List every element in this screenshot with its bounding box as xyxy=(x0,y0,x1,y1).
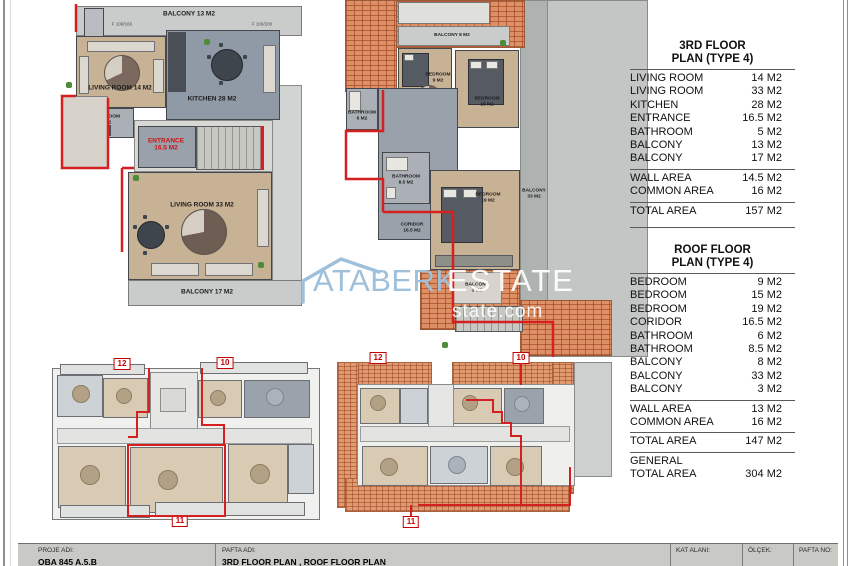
table-row: COMMON AREA16 M2 xyxy=(630,416,795,429)
furniture-dot xyxy=(116,388,132,404)
roof-tiles-left xyxy=(345,0,397,92)
table-row: BALCONY8 M2 xyxy=(630,356,795,369)
watermark-estate-text: ESTATE xyxy=(447,263,575,299)
table-row: BATHROOM5 M2 xyxy=(630,126,795,139)
furniture-dot xyxy=(80,465,100,485)
divider xyxy=(630,273,795,274)
table-row: LIVING ROOM14 M2 xyxy=(630,72,795,85)
bedroom-15-label: BEDROOM15 M2 xyxy=(474,96,499,107)
plant-icon xyxy=(442,342,448,348)
table-row: BALCONY17 M2 xyxy=(630,152,795,165)
corridor-band xyxy=(360,426,570,442)
table-title: 3RD FLOOR PLAN (TYPE 4) xyxy=(630,40,795,66)
kitchen-28 xyxy=(166,30,280,120)
table-row: BEDROOM15 M2 xyxy=(630,289,795,302)
table-row: BATHROOM6 M2 xyxy=(630,330,795,343)
table-total-row: TOTAL AREA147 M2 xyxy=(630,435,795,448)
balcony-13-label: BALCONY 13 M2 xyxy=(163,10,215,17)
closet-box xyxy=(84,8,104,38)
closet-row xyxy=(398,2,490,24)
table-row: BEDROOM19 M2 xyxy=(630,303,795,316)
table-row: BEDROOM9 M2 xyxy=(630,276,795,289)
bedroom-15 xyxy=(455,50,519,128)
title-block-divider xyxy=(670,544,671,566)
table-row: BALCONY13 M2 xyxy=(630,139,795,152)
bathroom-8-5-label: BATHROOM8.5 M2 xyxy=(392,174,420,185)
coridor-label: CORIDOR16.5 M2 xyxy=(401,222,424,233)
balcony-strip xyxy=(155,502,305,516)
divider xyxy=(630,169,795,170)
furniture-dot xyxy=(448,456,466,474)
table-title: ROOF FLOOR PLAN (TYPE 4) xyxy=(630,244,795,270)
unit-badge-10: 10 xyxy=(513,352,530,364)
unit-badge-10: 10 xyxy=(217,357,234,369)
furniture-dot xyxy=(158,470,178,490)
divider xyxy=(630,202,795,203)
table-row: LIVING ROOM33 M2 xyxy=(630,85,795,98)
table-row: ENTRANCE16.5 M2 xyxy=(630,112,795,125)
divider xyxy=(630,452,795,453)
sheet-border-right xyxy=(843,0,844,566)
drawing-sheet: BALCONY 13 M2 F 100/160 F 100/200 LIVING… xyxy=(0,0,850,566)
table-row: BALCONY33 M2 xyxy=(630,370,795,383)
table-row: CORIDOR16.5 M2 xyxy=(630,316,795,329)
table-general-label-row: GENERAL xyxy=(630,455,795,468)
title-block: PROJE ADI: OBA 845 A.5.B PAFTA ADI: 3RD … xyxy=(18,543,838,566)
balcony-17-label: BALCONY 17 M2 xyxy=(181,288,233,295)
area-table-3rd-floor: 3RD FLOOR PLAN (TYPE 4) LIVING ROOM14 M2… xyxy=(630,40,795,230)
area-table-roof-floor: ROOF FLOOR PLAN (TYPE 4) BEDROOM9 M2 BED… xyxy=(630,244,795,481)
corridor-band xyxy=(57,428,312,444)
balcony-strip xyxy=(60,364,145,375)
proje-adi-label: PROJE ADI: xyxy=(38,547,74,554)
kat-alani-label: KAT ALANI: xyxy=(676,547,710,554)
sheet-border-left xyxy=(3,0,5,566)
table-total-row: TOTAL AREA157 M2 xyxy=(630,205,795,218)
plant-icon xyxy=(133,175,139,181)
divider xyxy=(630,400,795,401)
divider xyxy=(630,69,795,70)
roof-terrace-side xyxy=(574,362,612,477)
divider xyxy=(630,432,795,433)
furniture-dot xyxy=(250,464,270,484)
title-block-divider xyxy=(742,544,743,566)
terrace-left xyxy=(62,96,108,168)
furniture-dot xyxy=(462,395,478,411)
proje-adi-value: OBA 845 A.5.B xyxy=(38,557,97,566)
bedroom-19-label: BEDROOM19 M2 xyxy=(475,192,500,203)
stair-core-inner xyxy=(160,388,186,412)
unit-room xyxy=(288,444,314,494)
plant-icon xyxy=(258,262,264,268)
furniture-dot xyxy=(266,388,284,406)
furniture-dot xyxy=(380,458,398,476)
table-row: BATHROOM8.5 M2 xyxy=(630,343,795,356)
table-row: WALL AREA14.5 M2 xyxy=(630,172,795,185)
unit-badge-11: 11 xyxy=(172,515,188,527)
plant-icon xyxy=(500,40,506,46)
bathroom-6 xyxy=(346,88,378,130)
plant-icon xyxy=(204,39,210,45)
furniture-dot xyxy=(72,385,90,403)
bathroom-6-label: BATHROOM6 M2 xyxy=(348,110,376,121)
table-row: WALL AREA13 M2 xyxy=(630,403,795,416)
table-row: COMMON AREA16 M2 xyxy=(630,185,795,198)
table-row: BALCONY3 M2 xyxy=(630,383,795,396)
kitchen-28-label: KITCHEN 28 M2 xyxy=(188,95,237,102)
unit-badge-12: 12 xyxy=(114,358,131,370)
dim-left: F 100/160 xyxy=(112,22,132,27)
watermark-brand-text: ATABERK xyxy=(313,263,457,299)
entrance-label: ENTRANCE16.5 M2 xyxy=(148,138,184,153)
unit-badge-11: 11 xyxy=(403,516,419,528)
balcony-33-label: BALCONY33 M2 xyxy=(522,188,546,199)
bedroom-9-label: BEDROOM9 M2 xyxy=(425,72,450,83)
watermark-domain-text: state.com xyxy=(452,301,543,323)
unit-badge-12: 12 xyxy=(370,352,387,364)
unit-room xyxy=(400,388,428,424)
sheet-border-left-inner xyxy=(10,0,11,566)
divider xyxy=(630,227,795,228)
furniture-dot xyxy=(506,458,524,476)
sheet-border-right-outer xyxy=(847,0,848,566)
title-block-divider xyxy=(793,544,794,566)
living-room-14-label: LIVING ROOM 14 M2 xyxy=(88,84,152,91)
furniture-dot xyxy=(370,395,386,411)
pafta-adi-value: 3RD FLOOR PLAN , ROOF FLOOR PLAN xyxy=(222,557,386,566)
balcony-strip xyxy=(60,505,150,518)
table-general-total-row: TOTAL AREA304 M2 xyxy=(630,468,795,481)
furniture-dot xyxy=(514,396,530,412)
living-room-33-label: LIVING ROOM 33 M2 xyxy=(170,201,234,208)
dim-right: F 100/200 xyxy=(252,22,272,27)
balcony-8-label: BALCONY 8 M2 xyxy=(434,33,470,39)
pafta-adi-label: PAFTA ADI: xyxy=(222,547,256,554)
pafta-no-label: PAFTA NO: xyxy=(799,547,832,554)
table-row: KITCHEN28 M2 xyxy=(630,99,795,112)
title-block-divider xyxy=(215,544,216,566)
furniture-dot xyxy=(210,390,226,406)
stairs-3rd xyxy=(196,126,264,170)
bedroom-19 xyxy=(430,170,520,270)
plant-icon xyxy=(66,82,72,88)
living-room-33 xyxy=(128,172,272,280)
olcek-label: ÖLÇEK: xyxy=(748,547,772,554)
